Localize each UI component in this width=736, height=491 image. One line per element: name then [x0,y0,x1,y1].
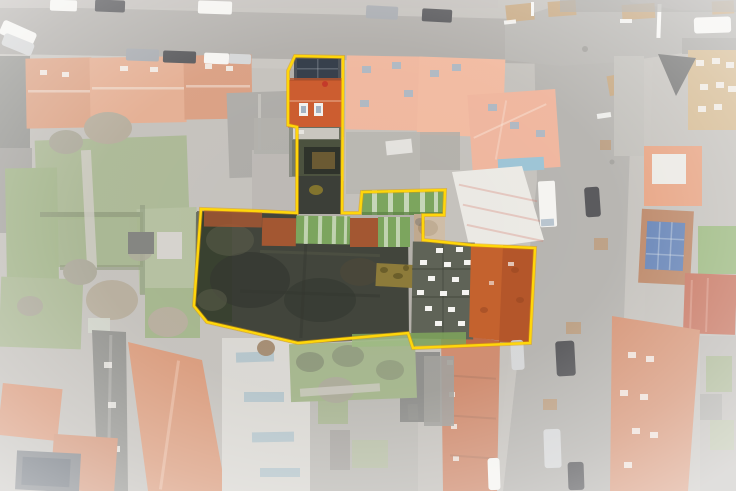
dormer-glass [316,106,321,113]
corrugation-stripe [434,190,438,215]
corrugation-stripe [304,216,308,244]
rust-tile-roof [350,218,379,247]
skylight [436,248,443,253]
moss-patch [309,185,323,195]
roof-seam [442,242,444,339]
roof-speck [516,297,524,303]
roof-white-dot [489,281,494,285]
roof-moss-texture [284,278,356,322]
aerial-photo [0,0,736,491]
corrugation-stripe [344,216,347,244]
roof-speck [480,307,488,313]
corrugation-stripe [388,190,393,215]
roof-moss-texture [340,258,380,286]
moss-speck [393,273,403,279]
roof-moss-texture [197,289,227,311]
skylight [448,307,455,312]
skylight [417,290,424,295]
rust-tile-roof [204,210,262,227]
corrugation-stripe [396,217,400,247]
roof-ridge [288,100,343,102]
corrugation-stripe [384,217,388,247]
moss-speck [380,267,388,273]
skylight [456,247,463,252]
red-object [322,81,328,87]
skylight [464,260,471,265]
skylight [444,262,451,267]
green-corrugated-roof [378,217,410,247]
skylight [458,321,465,326]
dormer-glass [301,106,306,113]
roof-speck [511,267,519,273]
corrugation-stripe [332,216,336,244]
skylight [425,306,432,311]
roof-white-dot [508,262,514,266]
skylight [428,276,435,281]
aerial-photo-canvas [0,0,736,491]
skylight [440,291,447,296]
skylight [452,277,459,282]
panel-grid-line [317,59,319,78]
corrugation-stripe [318,216,322,244]
corrugation-stripe [372,190,377,215]
chimney-row [290,78,343,81]
skylight [462,290,469,295]
roof-moss-texture [206,224,254,256]
corrugation-stripe [420,190,425,215]
skylight [420,260,427,265]
skylight [435,321,442,326]
plot-dark-path [298,176,342,214]
rust-tile-roof [262,218,296,247]
corrugation-stripe [404,190,409,215]
moss-speck [403,265,409,271]
brown-crate [312,152,335,169]
